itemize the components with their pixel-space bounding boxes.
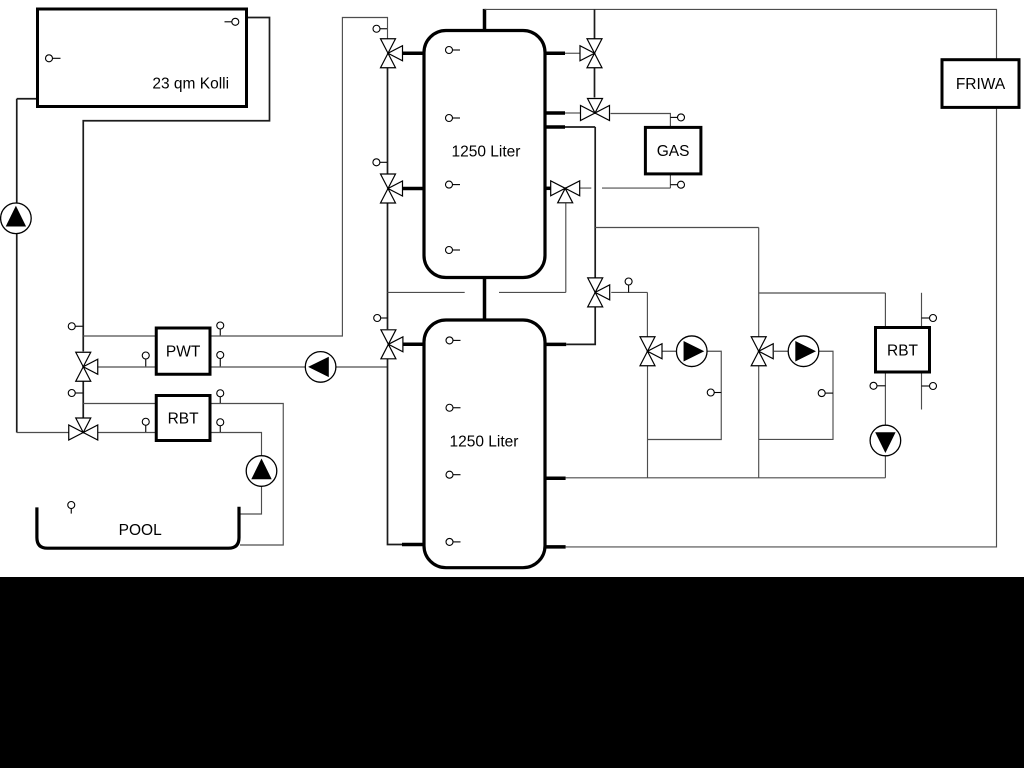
- svg-text:POOL: POOL: [119, 522, 162, 539]
- svg-text:23 qm Kolli: 23 qm Kolli: [152, 76, 229, 93]
- svg-text:RBT: RBT: [168, 411, 200, 428]
- svg-text:RBT: RBT: [887, 342, 919, 359]
- svg-text:1250 Liter: 1250 Liter: [450, 433, 519, 450]
- svg-text:PWT: PWT: [166, 344, 201, 361]
- svg-text:GAS: GAS: [657, 143, 690, 160]
- svg-text:1250 Liter: 1250 Liter: [452, 143, 521, 160]
- svg-text:FRIWA: FRIWA: [956, 76, 1006, 93]
